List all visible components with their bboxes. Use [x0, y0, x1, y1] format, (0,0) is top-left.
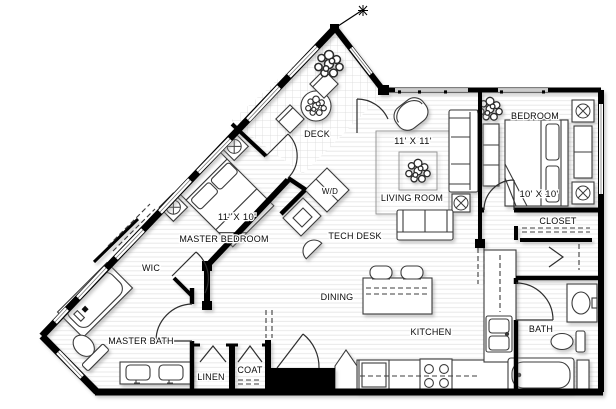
label-closet: CLOSET [539, 216, 577, 226]
sofa-icon [397, 210, 453, 240]
stool-icon [370, 266, 392, 279]
label-linen: LINEN [197, 372, 225, 382]
label-coat: COAT [237, 365, 262, 375]
double-vanity-icon [120, 362, 192, 384]
dim-living-room: 11' X 11' [394, 136, 432, 147]
island-icon [363, 278, 432, 314]
refrigerator-icon [359, 360, 389, 390]
label-deck: DECK [304, 129, 330, 139]
floor-plan: DECK W/D 11' X 11' LIVING ROOM BEDROOM 1… [0, 0, 616, 409]
label-bath: BATH [529, 324, 553, 334]
tub-ledge [577, 360, 589, 390]
floor-plan-drawing: DECK W/D 11' X 11' LIVING ROOM BEDROOM 1… [0, 0, 616, 409]
nightstand-lamp-icon [572, 100, 594, 122]
label-master-bath: MASTER BATH [108, 336, 174, 346]
label-living-room: LIVING ROOM [381, 193, 443, 203]
dresser-icon [483, 124, 499, 186]
entry-threshold [271, 368, 335, 394]
nightstand-lamp-icon [572, 182, 594, 204]
shelf-icon [574, 126, 592, 178]
label-master-bedroom: MASTER BEDROOM [179, 234, 268, 244]
stool-icon [401, 266, 423, 279]
property-line-star-icon [358, 5, 368, 16]
property-line [335, 5, 368, 28]
dim-master-bedroom: 11' X 10' [218, 212, 256, 223]
label-wic: WIC [142, 263, 160, 273]
label-bedroom: BEDROOM [511, 111, 559, 121]
label-dining: DINING [321, 292, 354, 302]
sofa-icon [449, 110, 478, 192]
label-laundry: W/D [322, 187, 338, 196]
label-tech-desk: TECH DESK [328, 231, 381, 241]
side-table-lamp-icon [452, 194, 470, 212]
label-kitchen: KITCHEN [411, 327, 452, 337]
dim-bedroom: 10' X 10' [519, 189, 558, 200]
vanity-sink-icon [567, 284, 597, 322]
kitchen-sink-icon [486, 316, 512, 352]
